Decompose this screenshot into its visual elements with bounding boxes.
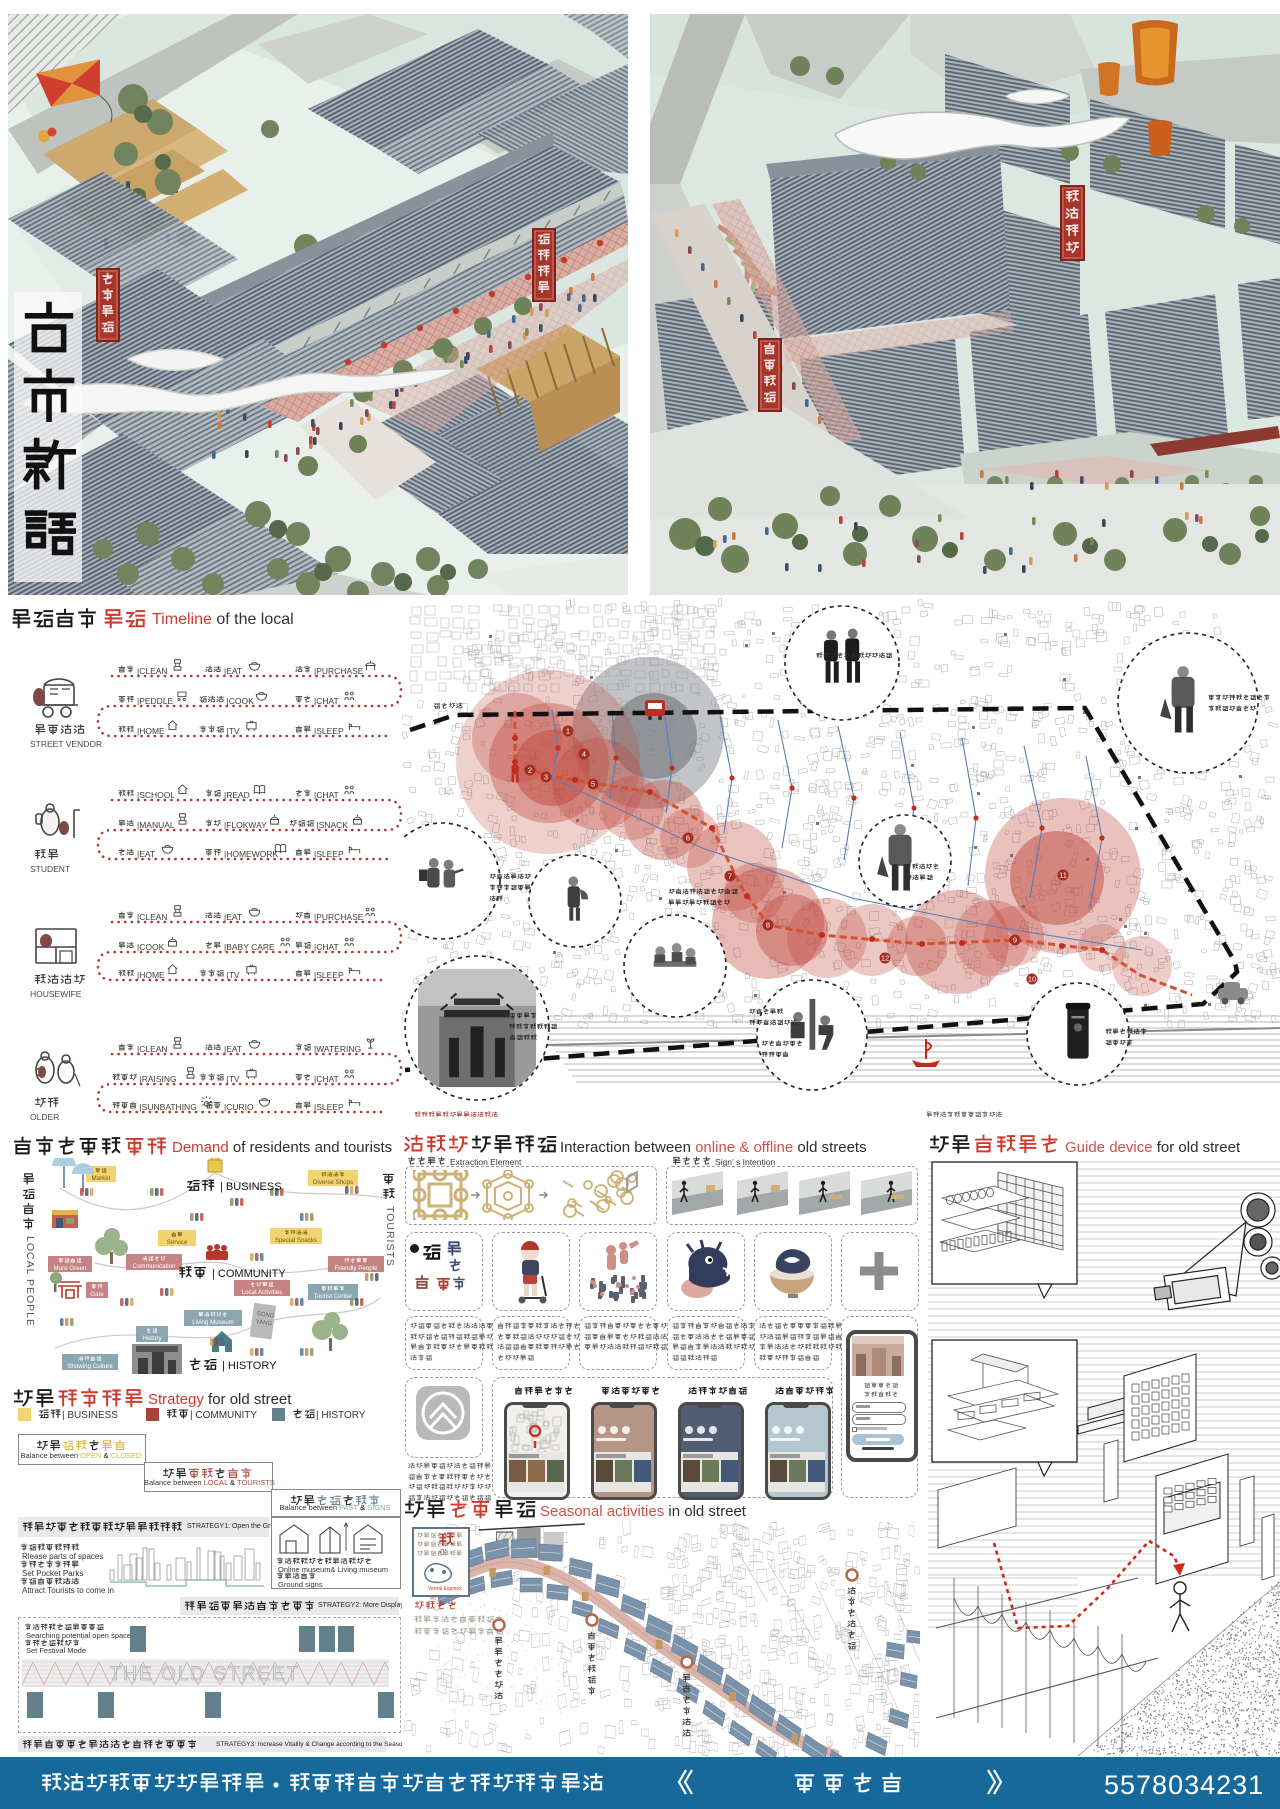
svg-text:2: 2 <box>528 766 532 775</box>
svg-text:Tourist Center: Tourist Center <box>314 1293 353 1300</box>
svg-text:Showing Culture: Showing Culture <box>67 1363 113 1370</box>
svg-text:Local Activities: Local Activities <box>242 1289 283 1296</box>
svg-text:More Green: More Green <box>53 1265 87 1272</box>
svg-text:1: 1 <box>566 727 570 736</box>
svg-text:THE OLD STREET: THE OLD STREET <box>110 1664 301 1685</box>
svg-text:Gate: Gate <box>90 1291 104 1298</box>
svg-text:7: 7 <box>728 872 732 881</box>
svg-text:11: 11 <box>1059 871 1067 880</box>
svg-text:12: 12 <box>881 954 889 963</box>
svg-text:Market: Market <box>92 1175 111 1182</box>
svg-text:5: 5 <box>591 780 595 789</box>
svg-text:Living Museum: Living Museum <box>192 1319 234 1326</box>
svg-text:Diverse Shops: Diverse Shops <box>313 1179 353 1186</box>
svg-text:8: 8 <box>766 921 770 930</box>
svg-text:3: 3 <box>544 773 548 782</box>
svg-text:4: 4 <box>582 750 586 759</box>
svg-text:History: History <box>142 1335 162 1342</box>
svg-text:Communication: Communication <box>133 1263 177 1270</box>
svg-text:Friendly People: Friendly People <box>335 1265 379 1272</box>
svg-text:10: 10 <box>1028 975 1036 984</box>
svg-text:6: 6 <box>686 834 690 843</box>
svg-text:9: 9 <box>1013 936 1017 945</box>
svg-text:Service: Service <box>167 1239 188 1246</box>
svg-text:Special Snacks: Special Snacks <box>275 1237 317 1244</box>
